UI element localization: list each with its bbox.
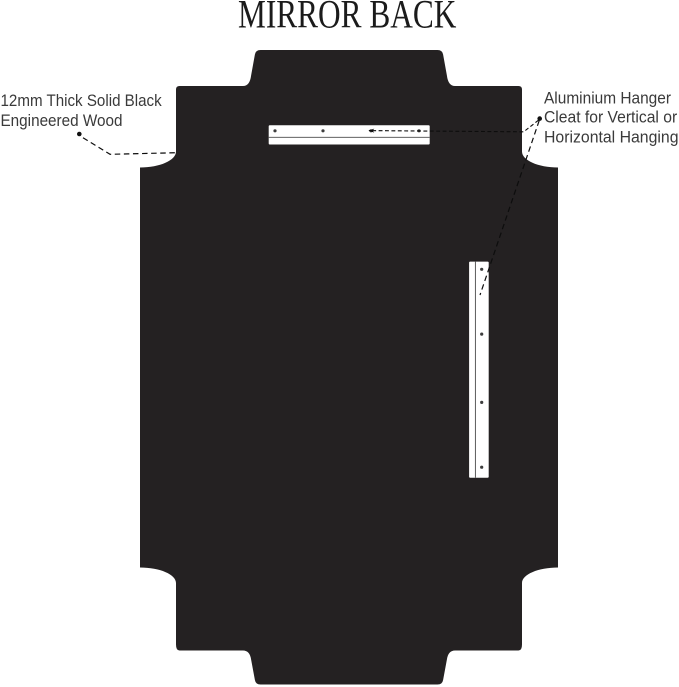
svg-text:Horizontal Hanging: Horizontal Hanging [544, 128, 679, 146]
svg-text:Aluminium Hanger: Aluminium Hanger [544, 89, 671, 107]
svg-text:MIRROR BACK: MIRROR BACK [238, 0, 456, 37]
svg-text:Engineered Wood: Engineered Wood [1, 112, 123, 130]
svg-text:12mm Thick Solid Black: 12mm Thick Solid Black [1, 92, 163, 110]
svg-text:Cleat for Vertical or: Cleat for Vertical or [544, 109, 678, 127]
